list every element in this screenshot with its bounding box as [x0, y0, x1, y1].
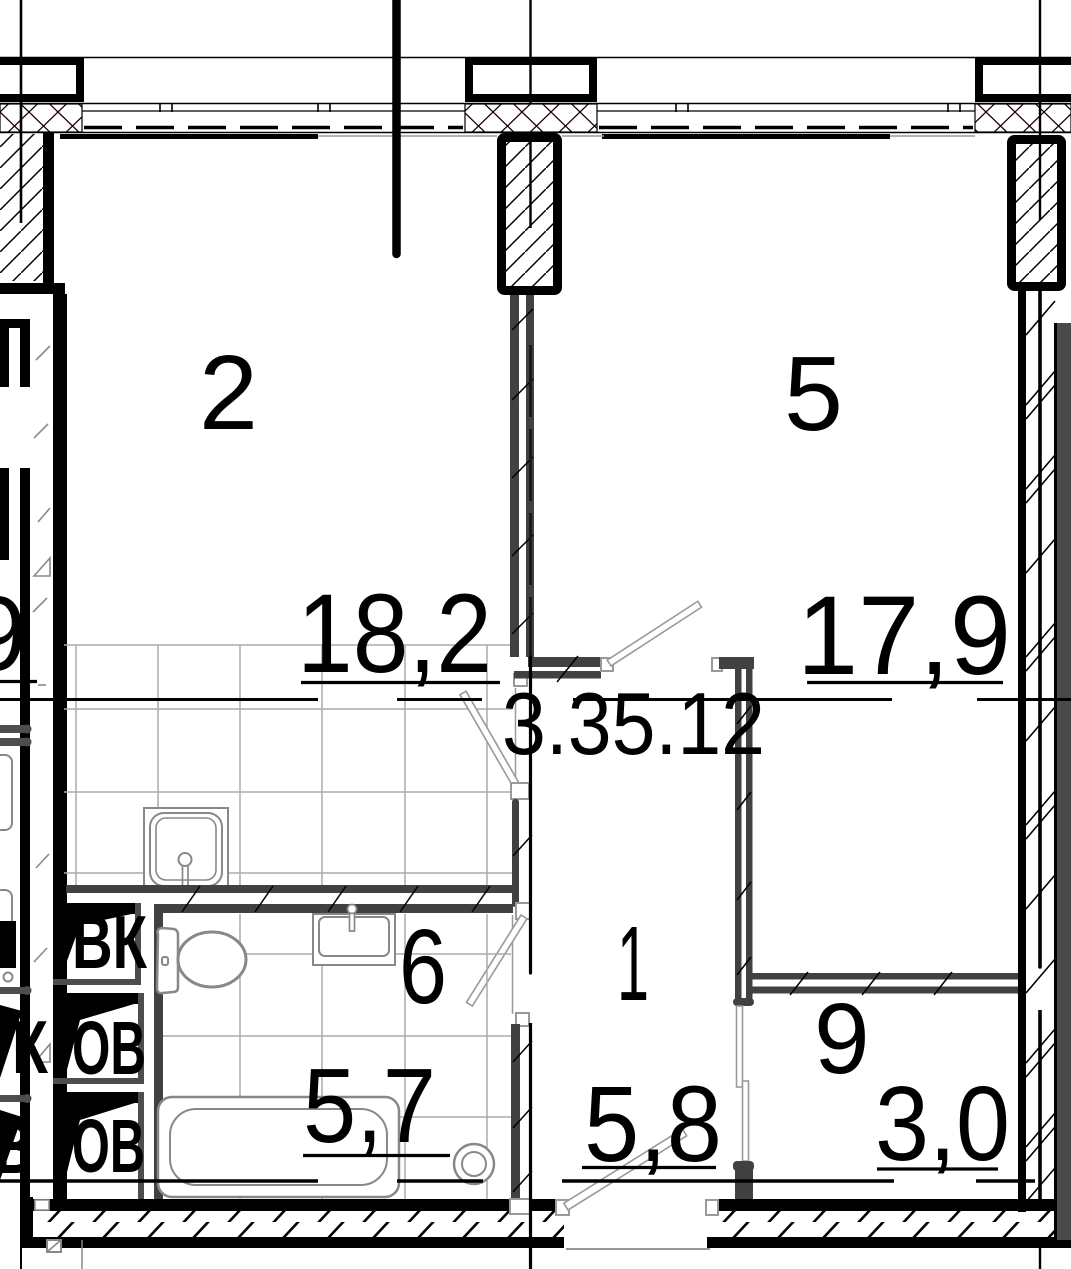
svg-text:5: 5 [784, 335, 843, 453]
svg-text:В: В [0, 1105, 32, 1189]
svg-text:5,7: 5,7 [303, 1047, 436, 1165]
svg-text:3,0: 3,0 [875, 1065, 1010, 1183]
svg-text:17,9: 17,9 [797, 573, 1011, 698]
svg-text:6: 6 [399, 908, 447, 1026]
svg-text:ВК: ВК [72, 900, 147, 984]
svg-text:5,8: 5,8 [584, 1063, 722, 1184]
svg-text:9: 9 [814, 983, 870, 1095]
svg-text:3.35.12: 3.35.12 [502, 674, 765, 773]
svg-text:9: 9 [0, 575, 27, 693]
svg-text:18,2: 18,2 [297, 571, 492, 696]
svg-text:2: 2 [199, 334, 258, 452]
svg-text:К: К [12, 1005, 48, 1089]
svg-text:ОВ: ОВ [72, 1104, 145, 1188]
svg-text:ОВ: ОВ [72, 1006, 146, 1090]
svg-text:1: 1 [617, 905, 649, 1023]
